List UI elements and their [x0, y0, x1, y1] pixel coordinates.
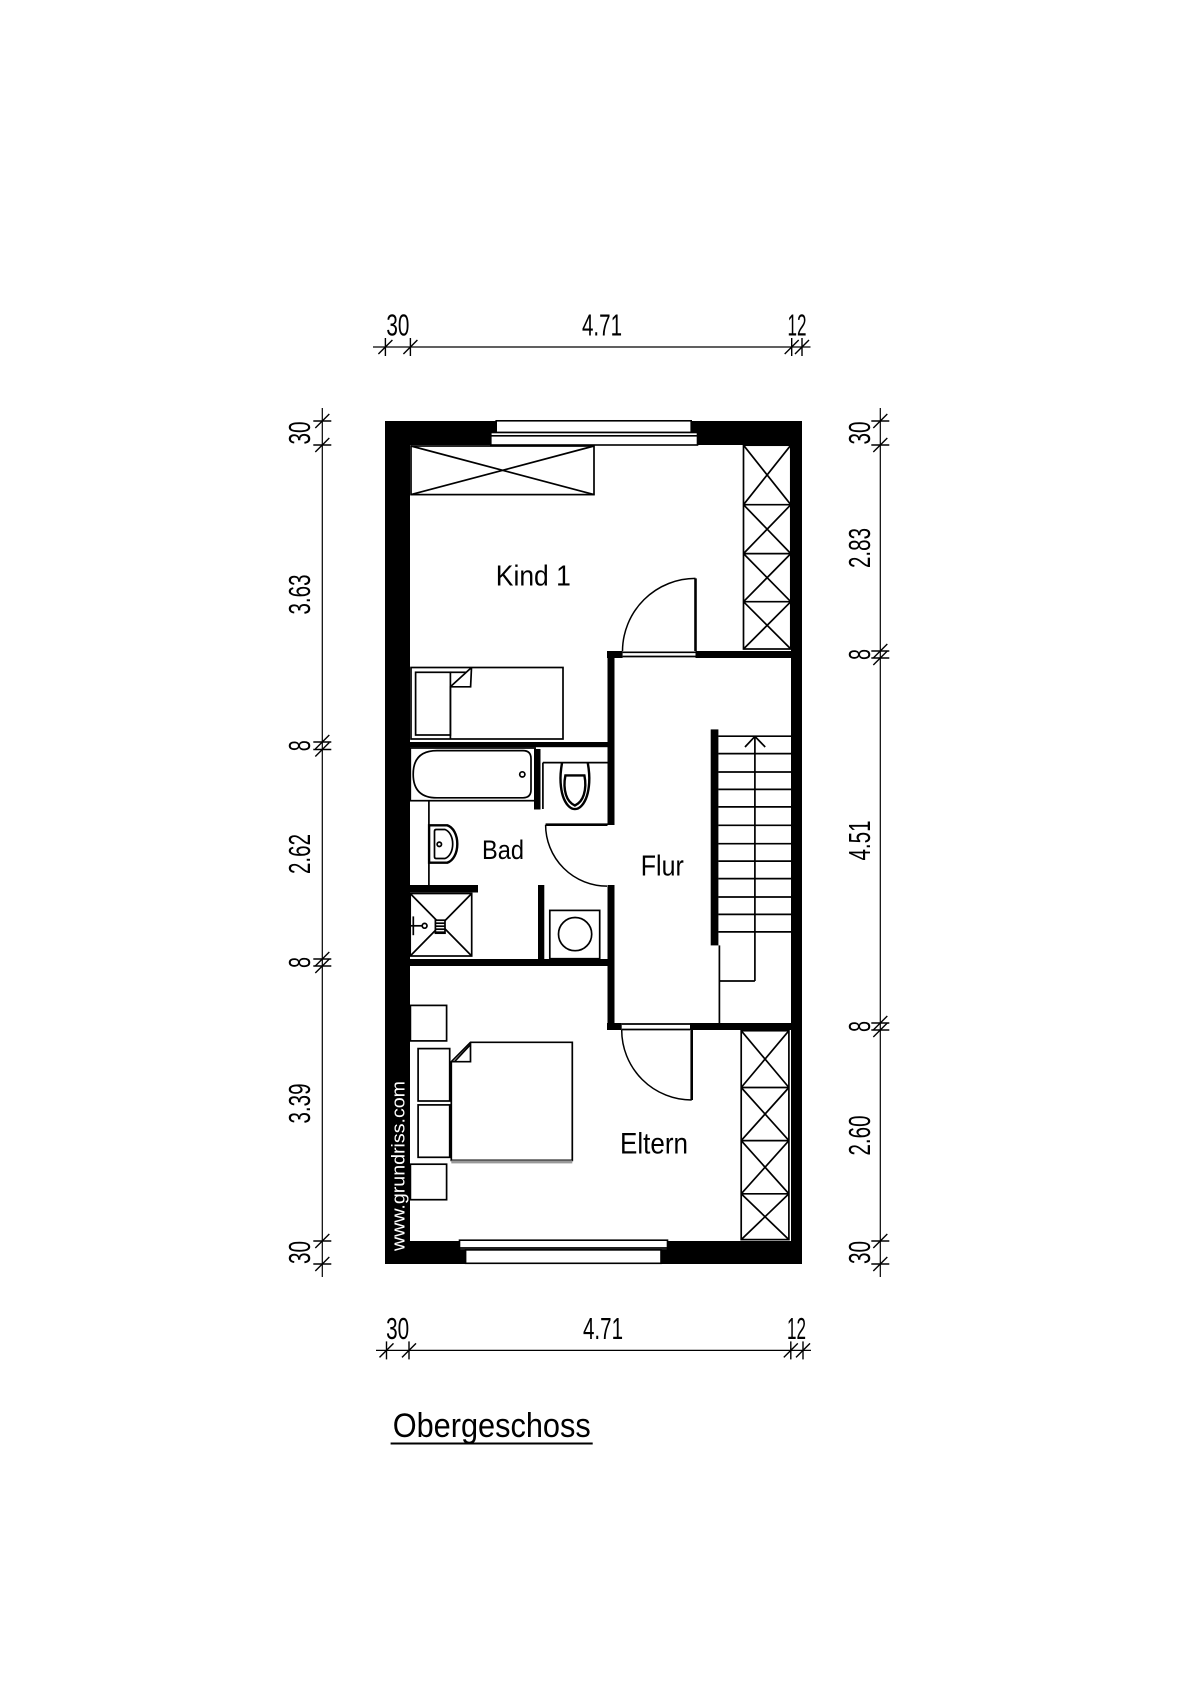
svg-text:3.39: 3.39 — [282, 1084, 317, 1124]
svg-text:8: 8 — [282, 740, 317, 751]
svg-text:8: 8 — [842, 1021, 877, 1032]
svg-text:Flur: Flur — [641, 851, 684, 883]
svg-text:12: 12 — [788, 308, 807, 343]
svg-text:Eltern: Eltern — [620, 1128, 688, 1161]
svg-text:30: 30 — [842, 422, 877, 445]
svg-text:30: 30 — [842, 1241, 877, 1264]
svg-text:30: 30 — [386, 308, 409, 343]
svg-text:4.51: 4.51 — [842, 821, 877, 861]
svg-text:3.63: 3.63 — [282, 575, 317, 615]
svg-text:12: 12 — [787, 1311, 806, 1346]
svg-text:8: 8 — [282, 957, 317, 968]
svg-text:2.60: 2.60 — [842, 1116, 877, 1156]
svg-text:4.71: 4.71 — [583, 1311, 623, 1346]
svg-text:30: 30 — [386, 1311, 409, 1346]
svg-text:4.71: 4.71 — [582, 308, 622, 343]
svg-text:Bad: Bad — [482, 835, 524, 865]
svg-text:www.grundriss.com: www.grundriss.com — [388, 1081, 409, 1252]
svg-text:8: 8 — [842, 649, 877, 660]
svg-text:2.83: 2.83 — [842, 528, 877, 568]
svg-text:Kind 1: Kind 1 — [496, 561, 571, 593]
svg-text:30: 30 — [282, 1241, 317, 1264]
svg-text:Obergeschoss: Obergeschoss — [393, 1407, 591, 1445]
svg-text:2.62: 2.62 — [282, 834, 317, 874]
svg-text:30: 30 — [282, 422, 317, 445]
